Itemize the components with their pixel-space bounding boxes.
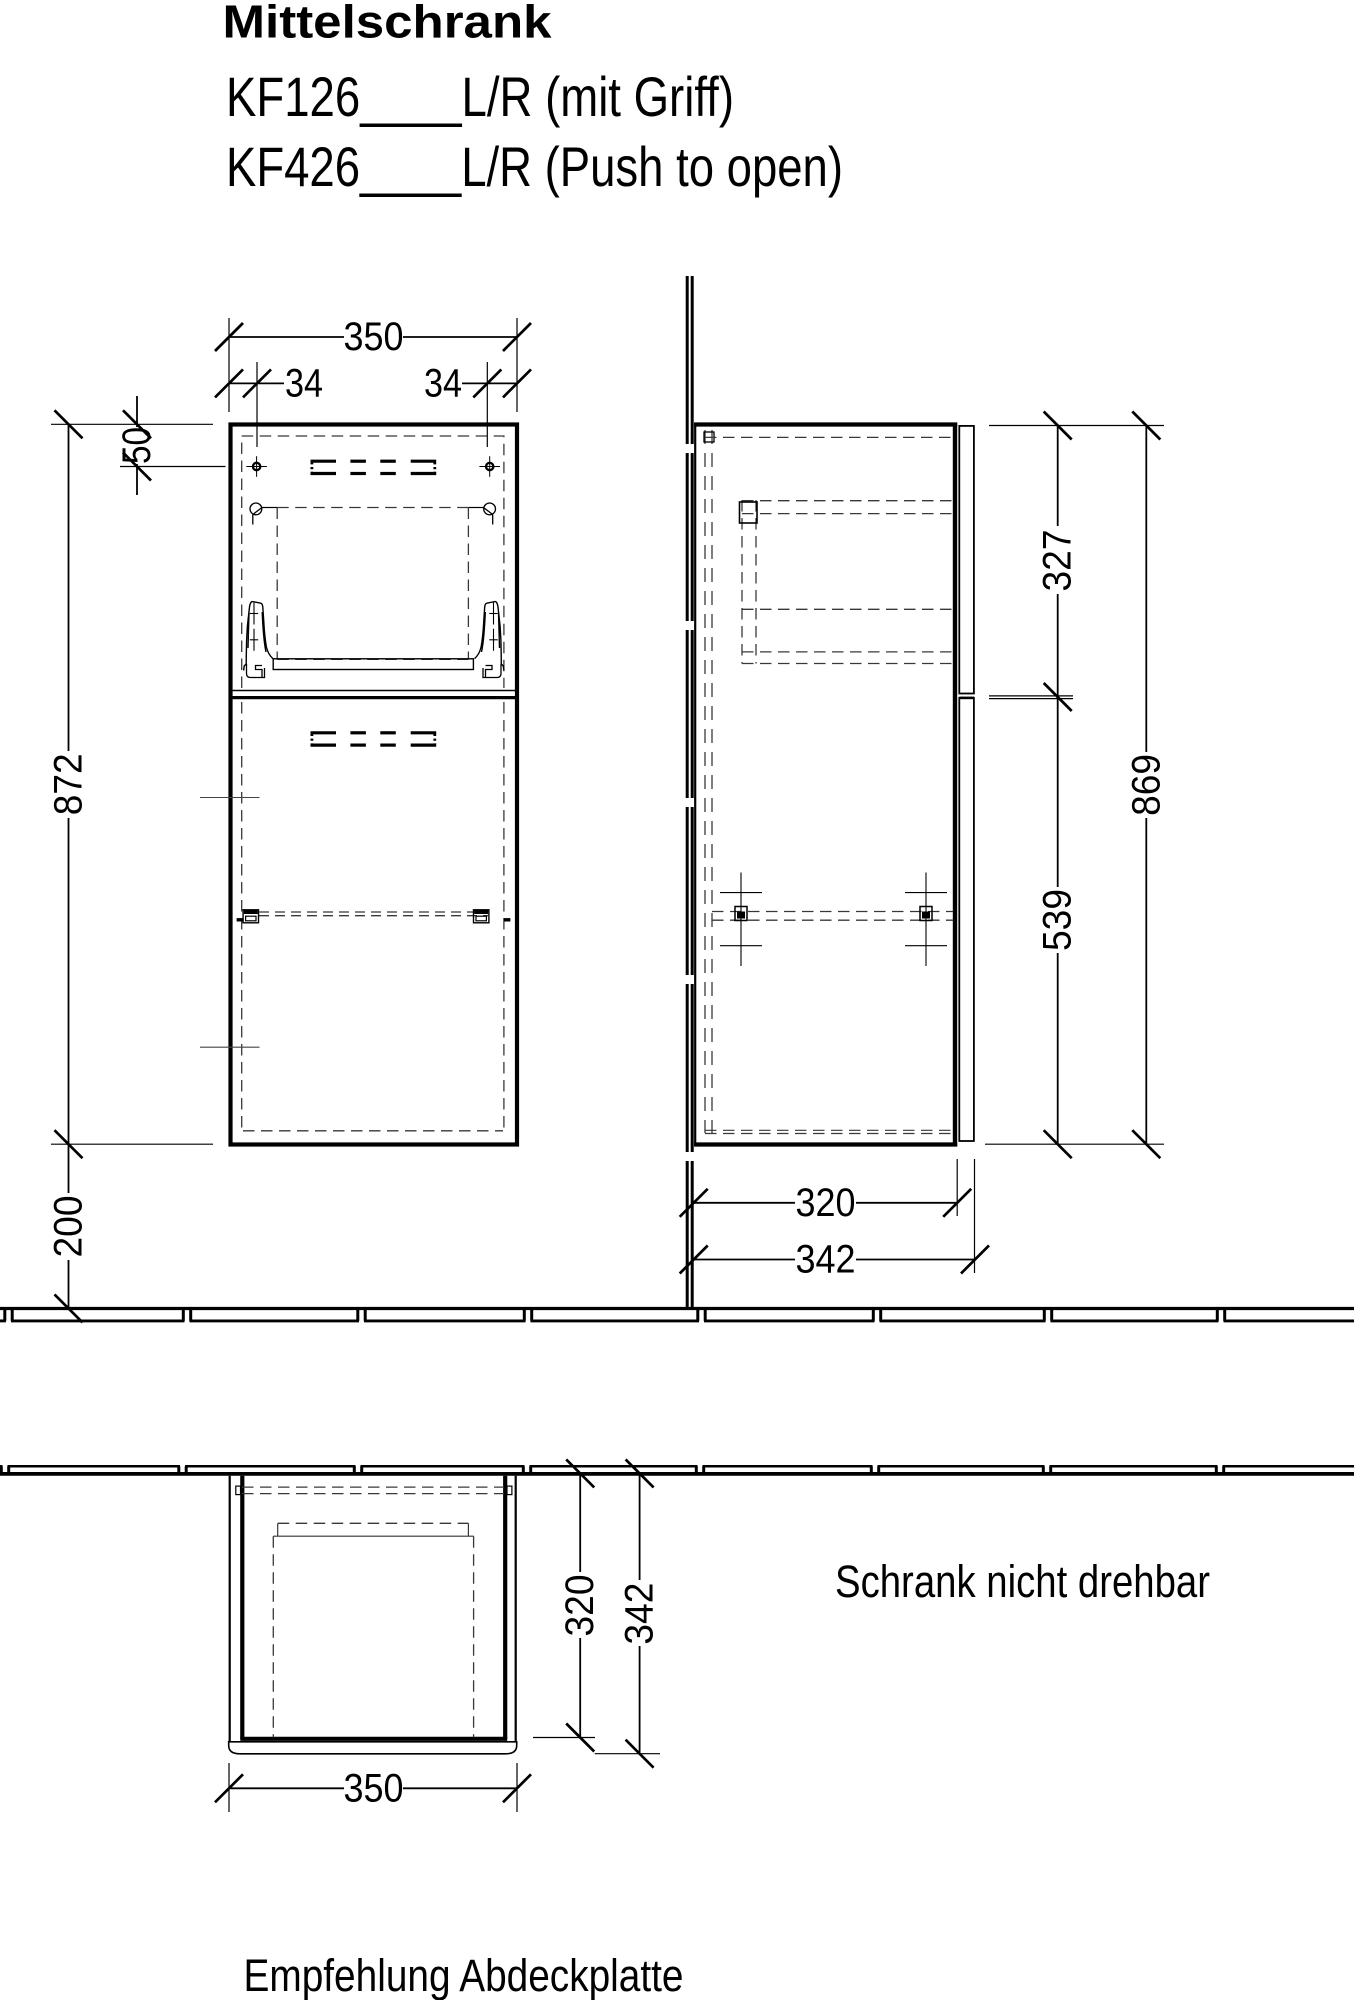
svg-text:350: 350	[344, 1766, 404, 1810]
svg-text:320: 320	[558, 1575, 602, 1637]
svg-text:Empfehlung Abdeckplatte: Empfehlung Abdeckplatte	[244, 1950, 684, 2000]
svg-text:34: 34	[424, 361, 462, 405]
svg-text:KF426____L/R (Push to open): KF426____L/R (Push to open)	[226, 135, 843, 198]
svg-text:Schrank nicht drehbar: Schrank nicht drehbar	[835, 1556, 1210, 1607]
svg-text:342: 342	[796, 1238, 856, 1282]
svg-text:200: 200	[47, 1196, 91, 1258]
svg-text:539: 539	[1036, 889, 1080, 951]
svg-text:342: 342	[618, 1583, 662, 1645]
svg-text:350: 350	[344, 315, 404, 359]
svg-text:KF126____L/R (mit Griff): KF126____L/R (mit Griff)	[226, 65, 734, 128]
svg-text:872: 872	[47, 753, 91, 815]
svg-text:Mittelschrank: Mittelschrank	[223, 0, 552, 48]
svg-text:320: 320	[796, 1181, 856, 1225]
svg-text:50: 50	[115, 427, 159, 464]
svg-text:327: 327	[1036, 530, 1080, 592]
svg-text:869: 869	[1124, 754, 1168, 816]
svg-text:34: 34	[285, 361, 323, 405]
